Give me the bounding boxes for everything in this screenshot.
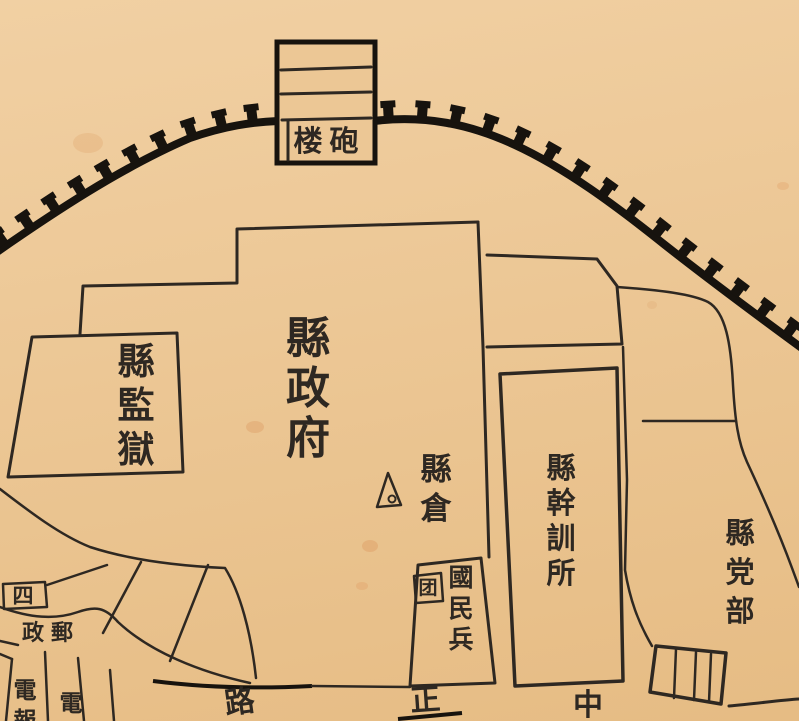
wall-tooth <box>608 181 612 187</box>
map-canvas: 楼砲縣政府縣監獄縣倉縣幹訓所縣党部國民兵团郵政四電報電路正中 scanned h… <box>0 0 799 721</box>
wall-tooth <box>76 184 82 193</box>
label-county-granary: 縣倉 <box>420 452 453 527</box>
prison-outline <box>8 333 183 477</box>
wall-tooth <box>629 206 636 215</box>
label-char: 府 <box>286 413 330 464</box>
gun-tower <box>277 42 375 163</box>
road-main-edge-right <box>729 699 799 706</box>
wall-tooth <box>655 226 662 235</box>
wall-tooth <box>487 121 491 131</box>
wall-tooth <box>423 101 424 108</box>
wall-tooth <box>103 168 109 178</box>
wall-tooth <box>156 133 159 139</box>
label-char: 兵 <box>448 625 473 654</box>
label-char: 党 <box>725 555 754 589</box>
label-county-government: 縣政府 <box>286 313 330 464</box>
label-telegraph: 電報 <box>14 678 38 721</box>
label-telephone: 電 <box>60 691 83 717</box>
label-char: 四 <box>13 584 34 608</box>
label-char: 訓 <box>546 521 575 555</box>
wall-tooth <box>760 306 767 315</box>
wall-tooth <box>159 138 164 148</box>
label-char: 正 <box>409 682 441 719</box>
hatched-building-outline <box>650 646 726 704</box>
wall-tooth <box>47 196 51 202</box>
label-char: 部 <box>725 594 754 628</box>
county-govt-outline-top <box>80 222 478 334</box>
label-char: 政 <box>22 620 45 646</box>
wall-tooth <box>251 110 252 121</box>
wall-tooth <box>603 186 609 195</box>
label-char: 郵 <box>51 621 73 646</box>
label-national-militia: 國民兵 <box>448 563 473 654</box>
label-char: 倉 <box>420 491 453 527</box>
stain <box>647 301 657 309</box>
wall-tooth <box>73 179 77 185</box>
wall-tooth <box>714 262 718 268</box>
label-cadre-training-institute: 縣幹訓所 <box>546 451 576 590</box>
wall-tooth <box>131 152 136 162</box>
wall-crenellations <box>0 101 797 335</box>
label-char: 縣 <box>286 313 330 364</box>
wall-tooth <box>681 247 688 256</box>
label-char: 民 <box>448 594 473 623</box>
stain <box>362 540 378 552</box>
gun-tower-outline <box>277 42 375 163</box>
wall-tooth <box>128 147 131 153</box>
wall-tooth <box>50 201 56 210</box>
label-char: 縣 <box>725 516 754 550</box>
wall-tooth <box>707 267 714 276</box>
label-char: 团 <box>418 577 437 599</box>
inner-path-to-wall <box>617 287 799 587</box>
label-char: 電 <box>60 691 83 717</box>
label-char: 縣 <box>118 340 155 383</box>
parcel-edge-fragments <box>0 641 18 659</box>
parcel-divider-a <box>47 565 107 585</box>
label-char: 幹 <box>546 486 576 520</box>
parcel-line-vertical <box>623 347 652 646</box>
wall-tooth <box>581 162 585 168</box>
wall-tooth <box>490 115 492 122</box>
wall-tooth <box>547 150 552 160</box>
label-char: 縣 <box>546 451 575 485</box>
county-govt-outline-right <box>478 222 489 557</box>
label-road-char-lu: 路 <box>222 683 258 721</box>
triangle-dot-icon <box>389 496 396 503</box>
parcel-divider-c <box>170 565 208 661</box>
wall-tooth <box>734 286 741 295</box>
wall-tooth <box>687 242 691 248</box>
wall-tooth <box>189 125 192 135</box>
label-road-char-zheng: 正 <box>409 682 441 719</box>
label-char: 砲 <box>329 124 358 158</box>
parcel-divider-b <box>103 562 141 633</box>
label-post-office: 郵政 <box>22 620 73 646</box>
annex-building-outline <box>487 255 622 347</box>
label-char: 報 <box>14 707 38 721</box>
wall-tooth <box>218 110 220 117</box>
label-militia-corps-char: 团 <box>418 577 437 599</box>
hatched-building <box>650 646 726 704</box>
stain <box>73 133 103 153</box>
wall-tooth <box>518 134 523 144</box>
wall-tooth <box>662 221 666 226</box>
road-main-edge <box>312 686 410 687</box>
wall-tooth <box>388 107 389 118</box>
label-parcel-four: 四 <box>13 584 34 608</box>
stain <box>777 182 789 190</box>
wall-tooth <box>0 235 4 244</box>
wall-tooth <box>740 282 744 288</box>
label-county-party-hq: 縣党部 <box>725 516 754 628</box>
label-char: 楼 <box>293 124 322 158</box>
label-road-char-zhong: 中 <box>573 688 603 721</box>
wall-tooth <box>793 321 797 327</box>
stain <box>356 582 368 590</box>
wall-tooth <box>219 116 222 127</box>
wall-tooth <box>20 213 24 219</box>
label-char: 電 <box>14 678 37 704</box>
label-char: 國 <box>448 563 473 592</box>
label-char: 縣 <box>421 452 452 488</box>
label-char: 中 <box>573 688 603 721</box>
stain <box>246 421 264 433</box>
wall-tooth <box>575 167 581 176</box>
city-wall-right <box>374 119 799 349</box>
label-char: 獄 <box>118 428 155 471</box>
hatch-lines <box>674 649 711 702</box>
label-char: 路 <box>222 683 258 721</box>
label-county-prison: 縣監獄 <box>118 340 155 471</box>
wall-tooth <box>455 112 457 123</box>
wall-tooth <box>422 107 423 118</box>
survey-triangle-marker <box>377 473 401 507</box>
wall-tooth <box>251 104 252 111</box>
wall-tooth <box>24 218 30 227</box>
wall-tooth <box>787 326 794 335</box>
wall-tooth <box>100 162 104 168</box>
wall-tooth <box>766 301 770 307</box>
label-char: 監 <box>118 384 155 427</box>
wall-tooth <box>522 129 525 135</box>
wall-tooth <box>187 119 189 126</box>
wall-tooth <box>552 144 555 150</box>
wall-tooth <box>457 106 458 113</box>
wall-tooth <box>635 201 639 207</box>
map-drawing: 楼砲縣政府縣監獄縣倉縣幹訓所縣党部國民兵团郵政四電報電路正中 <box>0 0 799 721</box>
label-char: 政 <box>286 363 330 414</box>
label-char: 所 <box>546 556 575 590</box>
